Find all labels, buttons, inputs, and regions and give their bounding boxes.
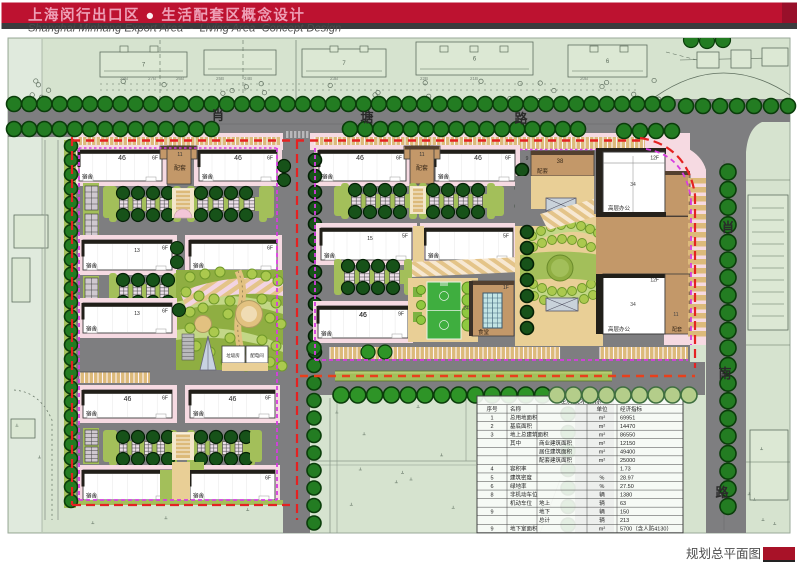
svg-text:34: 34 bbox=[630, 302, 636, 308]
svg-text:辆: 辆 bbox=[599, 507, 605, 515]
svg-text:m²: m² bbox=[599, 441, 606, 447]
svg-text:其中: 其中 bbox=[510, 439, 521, 447]
svg-text:m²: m² bbox=[599, 458, 606, 464]
svg-text:8: 8 bbox=[490, 492, 493, 498]
svg-text:12150: 12150 bbox=[620, 441, 635, 447]
svg-text:路: 路 bbox=[715, 485, 729, 500]
svg-text:配套: 配套 bbox=[416, 164, 428, 172]
svg-text:46: 46 bbox=[234, 155, 242, 162]
svg-text:宿舍: 宿舍 bbox=[82, 173, 94, 181]
svg-text:11: 11 bbox=[419, 152, 424, 158]
svg-text:9: 9 bbox=[490, 527, 493, 533]
svg-text:22B: 22B bbox=[420, 76, 428, 81]
svg-text:13: 13 bbox=[134, 248, 140, 254]
svg-text:配套: 配套 bbox=[537, 167, 549, 175]
svg-text:食堂: 食堂 bbox=[478, 328, 490, 336]
svg-text:46: 46 bbox=[474, 155, 482, 162]
svg-text:宿舍: 宿舍 bbox=[324, 252, 336, 260]
svg-text:11: 11 bbox=[673, 312, 678, 318]
svg-text:地下: 地下 bbox=[539, 507, 551, 515]
svg-text:4: 4 bbox=[490, 467, 493, 473]
svg-text:20B: 20B bbox=[580, 76, 588, 81]
svg-text:27.50: 27.50 bbox=[620, 484, 634, 490]
svg-text:6F: 6F bbox=[162, 396, 168, 402]
svg-text:5700（含人防4130）: 5700（含人防4130） bbox=[620, 525, 672, 533]
svg-text:高层办公: 高层办公 bbox=[608, 325, 631, 333]
svg-text:12F: 12F bbox=[650, 156, 659, 162]
svg-text:23B: 23B bbox=[330, 76, 338, 81]
svg-text:垃圾房: 垃圾房 bbox=[226, 352, 240, 359]
svg-text:46: 46 bbox=[118, 155, 126, 162]
svg-text:配套: 配套 bbox=[174, 164, 186, 172]
svg-text:%: % bbox=[600, 475, 605, 481]
svg-text:m²: m² bbox=[599, 415, 606, 421]
svg-text:宿舍: 宿舍 bbox=[86, 410, 98, 418]
svg-text:9F: 9F bbox=[398, 312, 404, 318]
svg-text:6F: 6F bbox=[505, 156, 511, 162]
svg-text:14470: 14470 bbox=[620, 424, 635, 430]
svg-text:基底面积: 基底面积 bbox=[510, 422, 533, 430]
svg-text:单位: 单位 bbox=[596, 405, 608, 413]
svg-text:宿舍: 宿舍 bbox=[321, 330, 333, 338]
svg-text:6F: 6F bbox=[162, 309, 168, 315]
svg-text:27B: 27B bbox=[148, 76, 156, 81]
svg-text:宿舍: 宿舍 bbox=[193, 410, 205, 418]
svg-text:经济指标: 经济指标 bbox=[620, 405, 643, 413]
svg-text:南: 南 bbox=[718, 366, 731, 381]
svg-text:规划总平面图: 规划总平面图 bbox=[686, 546, 761, 561]
svg-text:高层办公: 高层办公 bbox=[608, 204, 631, 212]
svg-text:11: 11 bbox=[177, 152, 182, 158]
svg-text:%: % bbox=[600, 484, 605, 490]
svg-text:辆: 辆 bbox=[599, 490, 605, 498]
svg-text:肖: 肖 bbox=[721, 220, 734, 235]
svg-text:容积率: 容积率 bbox=[510, 465, 527, 473]
svg-text:上海闵行出口区 ● 生活配套区概念设计: 上海闵行出口区 ● 生活配套区概念设计 bbox=[28, 6, 305, 24]
svg-text:商业建筑面积: 商业建筑面积 bbox=[539, 439, 573, 447]
svg-text:46: 46 bbox=[124, 396, 132, 403]
svg-text:6F: 6F bbox=[265, 476, 271, 482]
svg-text:地下室面积: 地下室面积 bbox=[510, 525, 538, 533]
svg-text:塘: 塘 bbox=[360, 110, 373, 125]
svg-text:24: 24 bbox=[463, 306, 469, 312]
svg-text:6F: 6F bbox=[152, 156, 158, 162]
svg-text:m²: m² bbox=[599, 424, 606, 430]
svg-text:12F: 12F bbox=[650, 278, 659, 284]
svg-text:宿舍: 宿舍 bbox=[193, 492, 205, 500]
svg-text:21B: 21B bbox=[470, 76, 478, 81]
svg-text:6F: 6F bbox=[267, 246, 273, 252]
svg-text:序号: 序号 bbox=[486, 405, 498, 413]
svg-text:5: 5 bbox=[490, 475, 493, 481]
svg-text:6F: 6F bbox=[265, 396, 271, 402]
svg-text:建筑密度: 建筑密度 bbox=[510, 473, 533, 481]
svg-text:机动车位: 机动车位 bbox=[510, 499, 533, 507]
svg-text:居住建筑面积: 居住建筑面积 bbox=[539, 448, 573, 456]
svg-text:m²: m² bbox=[599, 450, 606, 456]
svg-text:150: 150 bbox=[620, 509, 629, 515]
svg-text:6F: 6F bbox=[162, 246, 168, 252]
svg-text:m²: m² bbox=[599, 527, 606, 533]
svg-text:宿舍: 宿舍 bbox=[428, 252, 440, 260]
svg-text:9: 9 bbox=[490, 509, 493, 515]
svg-text:宿舍: 宿舍 bbox=[86, 262, 98, 270]
svg-text:5F: 5F bbox=[503, 234, 509, 240]
svg-text:名称: 名称 bbox=[510, 405, 522, 413]
svg-text:m²: m² bbox=[599, 433, 606, 439]
svg-text:46: 46 bbox=[359, 312, 367, 319]
svg-text:24B: 24B bbox=[244, 76, 252, 81]
svg-text:6F: 6F bbox=[267, 156, 273, 162]
svg-text:总用地面积: 总用地面积 bbox=[510, 413, 538, 421]
svg-text:6: 6 bbox=[490, 484, 493, 490]
svg-text:Shanghai Minhang Export Area: Shanghai Minhang Export Area - Living Ar… bbox=[28, 23, 341, 35]
svg-text:63: 63 bbox=[620, 501, 626, 507]
svg-text:总计: 总计 bbox=[539, 516, 551, 524]
svg-text:38: 38 bbox=[557, 159, 564, 165]
svg-text:28B: 28B bbox=[120, 76, 128, 81]
svg-text:25000: 25000 bbox=[620, 458, 635, 464]
svg-text:5F: 5F bbox=[402, 234, 408, 240]
svg-text:2: 2 bbox=[490, 424, 493, 430]
svg-text:地上总建筑面积: 地上总建筑面积 bbox=[510, 431, 549, 439]
svg-text:宿舍: 宿舍 bbox=[86, 325, 98, 333]
svg-text:宿舍: 宿舍 bbox=[322, 173, 334, 181]
svg-text:1.73: 1.73 bbox=[620, 467, 631, 473]
svg-text:肖: 肖 bbox=[211, 108, 224, 123]
svg-text:绿地率: 绿地率 bbox=[510, 482, 527, 490]
svg-text:6F: 6F bbox=[396, 156, 402, 162]
svg-text:配电间: 配电间 bbox=[250, 352, 264, 359]
svg-text:213: 213 bbox=[620, 518, 629, 524]
svg-text:3: 3 bbox=[490, 433, 493, 439]
svg-text:配套: 配套 bbox=[672, 326, 682, 333]
svg-text:路: 路 bbox=[514, 111, 528, 126]
svg-text:宿舍: 宿舍 bbox=[438, 173, 450, 181]
svg-text:46: 46 bbox=[229, 396, 237, 403]
svg-text:69951: 69951 bbox=[620, 415, 635, 421]
svg-text:宿舍: 宿舍 bbox=[86, 492, 98, 500]
svg-text:宿舍: 宿舍 bbox=[193, 262, 205, 270]
svg-text:15: 15 bbox=[367, 236, 373, 242]
svg-text:1: 1 bbox=[490, 415, 493, 421]
svg-text:28.97: 28.97 bbox=[620, 475, 634, 481]
svg-text:配套建筑面积: 配套建筑面积 bbox=[539, 456, 573, 464]
svg-text:86550: 86550 bbox=[620, 433, 635, 439]
svg-text:49400: 49400 bbox=[620, 450, 635, 456]
svg-text:辆: 辆 bbox=[599, 516, 605, 524]
svg-text:9: 9 bbox=[526, 156, 529, 162]
svg-text:1F: 1F bbox=[503, 285, 509, 291]
svg-text:13: 13 bbox=[134, 311, 140, 317]
svg-text:1380: 1380 bbox=[620, 492, 632, 498]
svg-text:地上: 地上 bbox=[539, 499, 551, 507]
svg-text:25B: 25B bbox=[216, 76, 224, 81]
svg-text:46: 46 bbox=[356, 155, 364, 162]
svg-text:辆: 辆 bbox=[599, 499, 605, 507]
svg-text:26B: 26B bbox=[176, 76, 184, 81]
svg-text:非机动车位: 非机动车位 bbox=[510, 490, 538, 498]
svg-text:宿舍: 宿舍 bbox=[202, 173, 214, 181]
